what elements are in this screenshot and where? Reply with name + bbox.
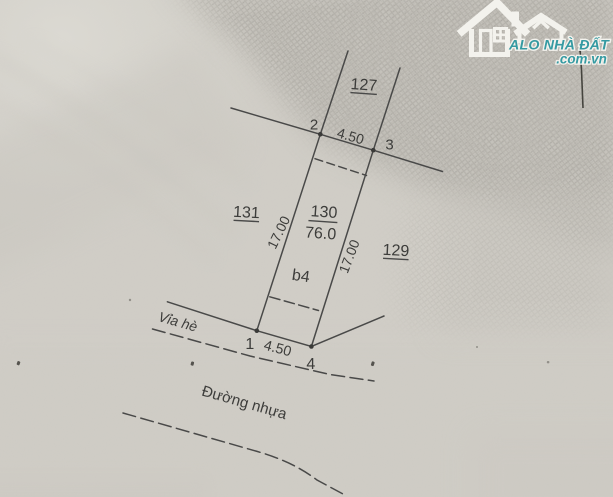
svg-text:3: 3: [385, 137, 393, 154]
svg-text:127: 127: [350, 76, 378, 95]
svg-text:4: 4: [306, 356, 315, 373]
svg-text:2: 2: [310, 117, 318, 134]
svg-text:76.0: 76.0: [304, 224, 336, 243]
svg-text:130: 130: [310, 203, 338, 222]
svg-text:1: 1: [245, 336, 254, 353]
svg-text:131: 131: [233, 204, 261, 222]
svg-text:129: 129: [382, 242, 410, 260]
svg-text:.com.vn: .com.vn: [556, 51, 607, 66]
svg-text:b4: b4: [291, 267, 311, 286]
